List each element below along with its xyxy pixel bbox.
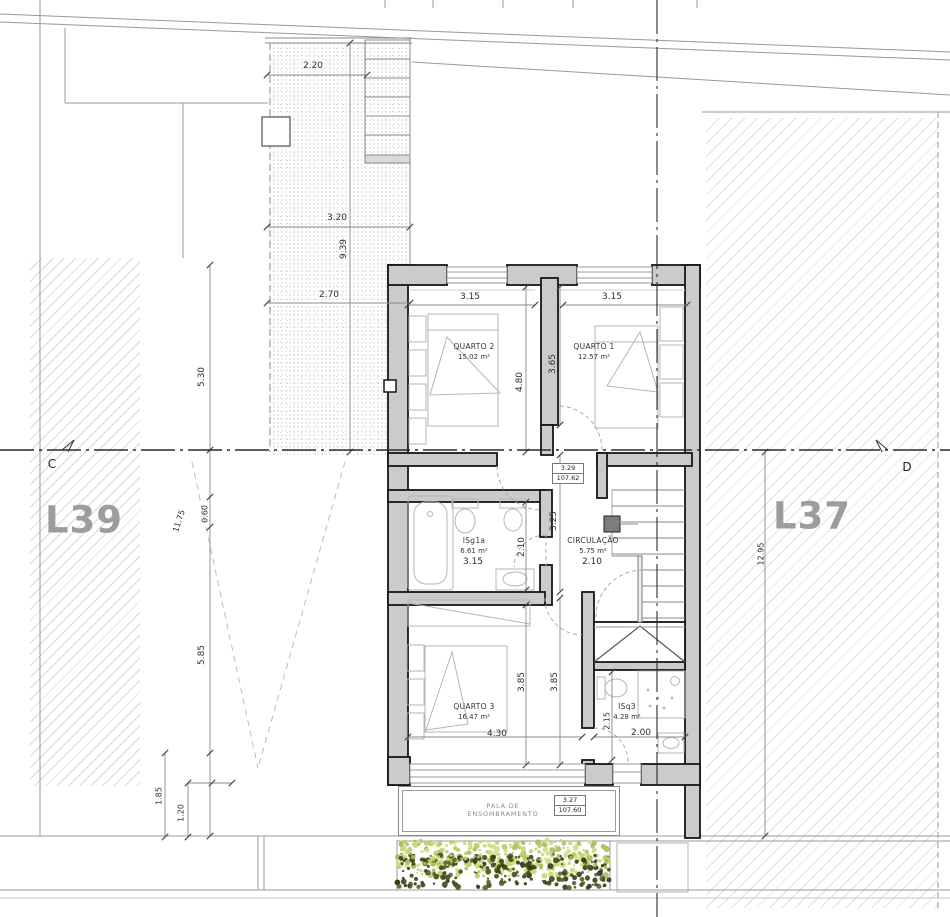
courtyard-stipple-upper — [268, 42, 410, 265]
dim-1-85: 1.85 — [155, 787, 164, 805]
room-name: ISq3 — [613, 702, 640, 712]
dim-2-20: 2.20 — [303, 61, 323, 71]
room-area: 15.02 m² — [453, 352, 494, 362]
floor-plan-drawing: PALA DE ENSOMBRAMENTO 3.29 107.62 3.27 1… — [0, 0, 950, 917]
dim-12-95: 12.95 — [757, 543, 766, 566]
furniture-fixtures — [384, 307, 685, 753]
room-label-circulacao: CIRCULAÇÃO 5.75 m² — [567, 536, 619, 556]
dim-0-60: 0.60 — [201, 505, 210, 523]
hedge — [395, 838, 612, 891]
dim-4-30: 4.30 — [487, 729, 507, 739]
room-label-quarto2: QUARTO 2 15.02 m² — [453, 342, 494, 362]
dim-4-80: 4.80 — [515, 372, 525, 392]
room-name: QUARTO 1 — [573, 342, 614, 352]
dim-1-20: 1.20 — [177, 804, 186, 822]
canopy-label-line2: ENSOMBRAMENTO — [467, 810, 538, 818]
dim-9-39: 9.39 — [339, 239, 349, 259]
dim-11-75: 11.75 — [171, 509, 187, 534]
dim-2-10-bath: 2.10 — [517, 537, 527, 557]
lot-label-right: L37 — [773, 495, 851, 538]
dim-3-25: 3.25 — [549, 511, 559, 531]
windows — [410, 267, 685, 783]
dim-5-85: 5.85 — [197, 645, 207, 665]
room-area: 4.28 m² — [613, 712, 640, 722]
level-elevation: 107.62 — [553, 473, 583, 483]
slope-diagonal-lines — [192, 462, 345, 768]
section-marker-c: C — [48, 457, 56, 471]
room-label-isg1a: ISg1a 6.61 m² — [460, 536, 487, 556]
dim-3-20: 3.20 — [327, 213, 347, 223]
room-area: 12.57 m² — [573, 352, 614, 362]
room-label-quarto3: QUARTO 3 16.47 m² — [453, 702, 494, 722]
dim-3-15-q2: 3.15 — [460, 292, 480, 302]
section-marker-d: D — [902, 460, 911, 474]
dim-5-30: 5.30 — [197, 367, 207, 387]
dim-3-15-bath: 3.15 — [463, 557, 483, 567]
level-elevation: 107.60 — [555, 805, 585, 815]
room-area: 5.75 m² — [567, 546, 619, 556]
room-name: ISg1a — [460, 536, 487, 546]
level-marker-upper: 3.29 107.62 — [552, 463, 584, 484]
dim-2-10-circ: 2.10 — [582, 557, 602, 567]
level-height: 3.29 — [553, 464, 583, 473]
building-walls — [388, 265, 700, 838]
room-area: 6.61 m² — [460, 546, 487, 556]
level-height: 3.27 — [555, 796, 585, 805]
lot-label-left: L39 — [45, 499, 123, 542]
room-name: QUARTO 2 — [453, 342, 494, 352]
dim-3-15-q1: 3.15 — [602, 292, 622, 302]
room-label-isq3: ISq3 4.28 m² — [613, 702, 640, 722]
dim-2-00: 2.00 — [631, 728, 651, 738]
room-area: 16.47 m² — [453, 712, 494, 722]
stairs — [604, 490, 685, 622]
dim-3-85-a: 3.85 — [517, 672, 527, 692]
dim-3-65: 3.65 — [548, 354, 558, 374]
room-name: QUARTO 3 — [453, 702, 494, 712]
skylight-box — [594, 622, 685, 662]
canopy-label: PALA DE ENSOMBRAMENTO — [467, 802, 538, 818]
canopy-label-line1: PALA DE — [467, 802, 538, 810]
dim-3-85-b: 3.85 — [550, 672, 560, 692]
level-marker-lower: 3.27 107.60 — [554, 795, 586, 816]
dim-2-15: 2.15 — [603, 712, 612, 730]
room-name: CIRCULAÇÃO — [567, 536, 619, 546]
room-label-quarto1: QUARTO 1 12.57 m² — [573, 342, 614, 362]
dim-2-70: 2.70 — [319, 290, 339, 300]
